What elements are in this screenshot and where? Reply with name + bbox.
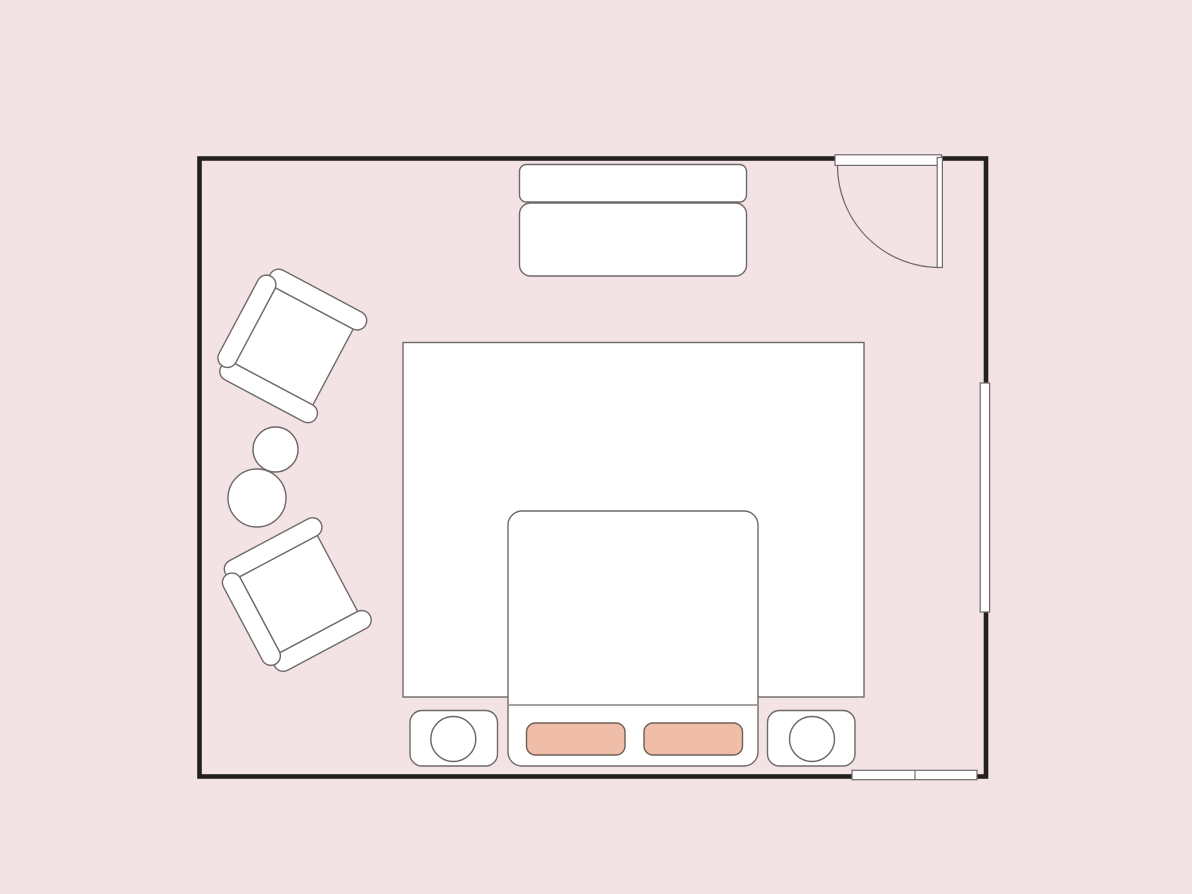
door-opening <box>835 155 942 166</box>
bed[interactable] <box>508 511 758 766</box>
window-right[interactable] <box>980 383 989 612</box>
side-table-large[interactable] <box>228 469 286 527</box>
sideboard-body <box>520 203 747 276</box>
nightstand-left[interactable] <box>410 711 498 767</box>
lamp-left-icon <box>431 717 476 762</box>
side-table-small[interactable] <box>253 427 298 472</box>
sideboard-top <box>520 165 747 203</box>
sideboard[interactable] <box>520 165 747 277</box>
door-leaf <box>937 158 942 268</box>
nightstand-right[interactable] <box>768 711 856 767</box>
floor-plan-svg <box>0 0 1192 894</box>
bed-pillow-left <box>527 723 626 755</box>
bed-pillow-right <box>644 723 743 755</box>
lamp-right-icon <box>790 717 835 762</box>
window-bottom[interactable] <box>852 770 977 779</box>
floor-plan-canvas <box>0 0 1192 894</box>
window-right-pane <box>980 383 989 612</box>
